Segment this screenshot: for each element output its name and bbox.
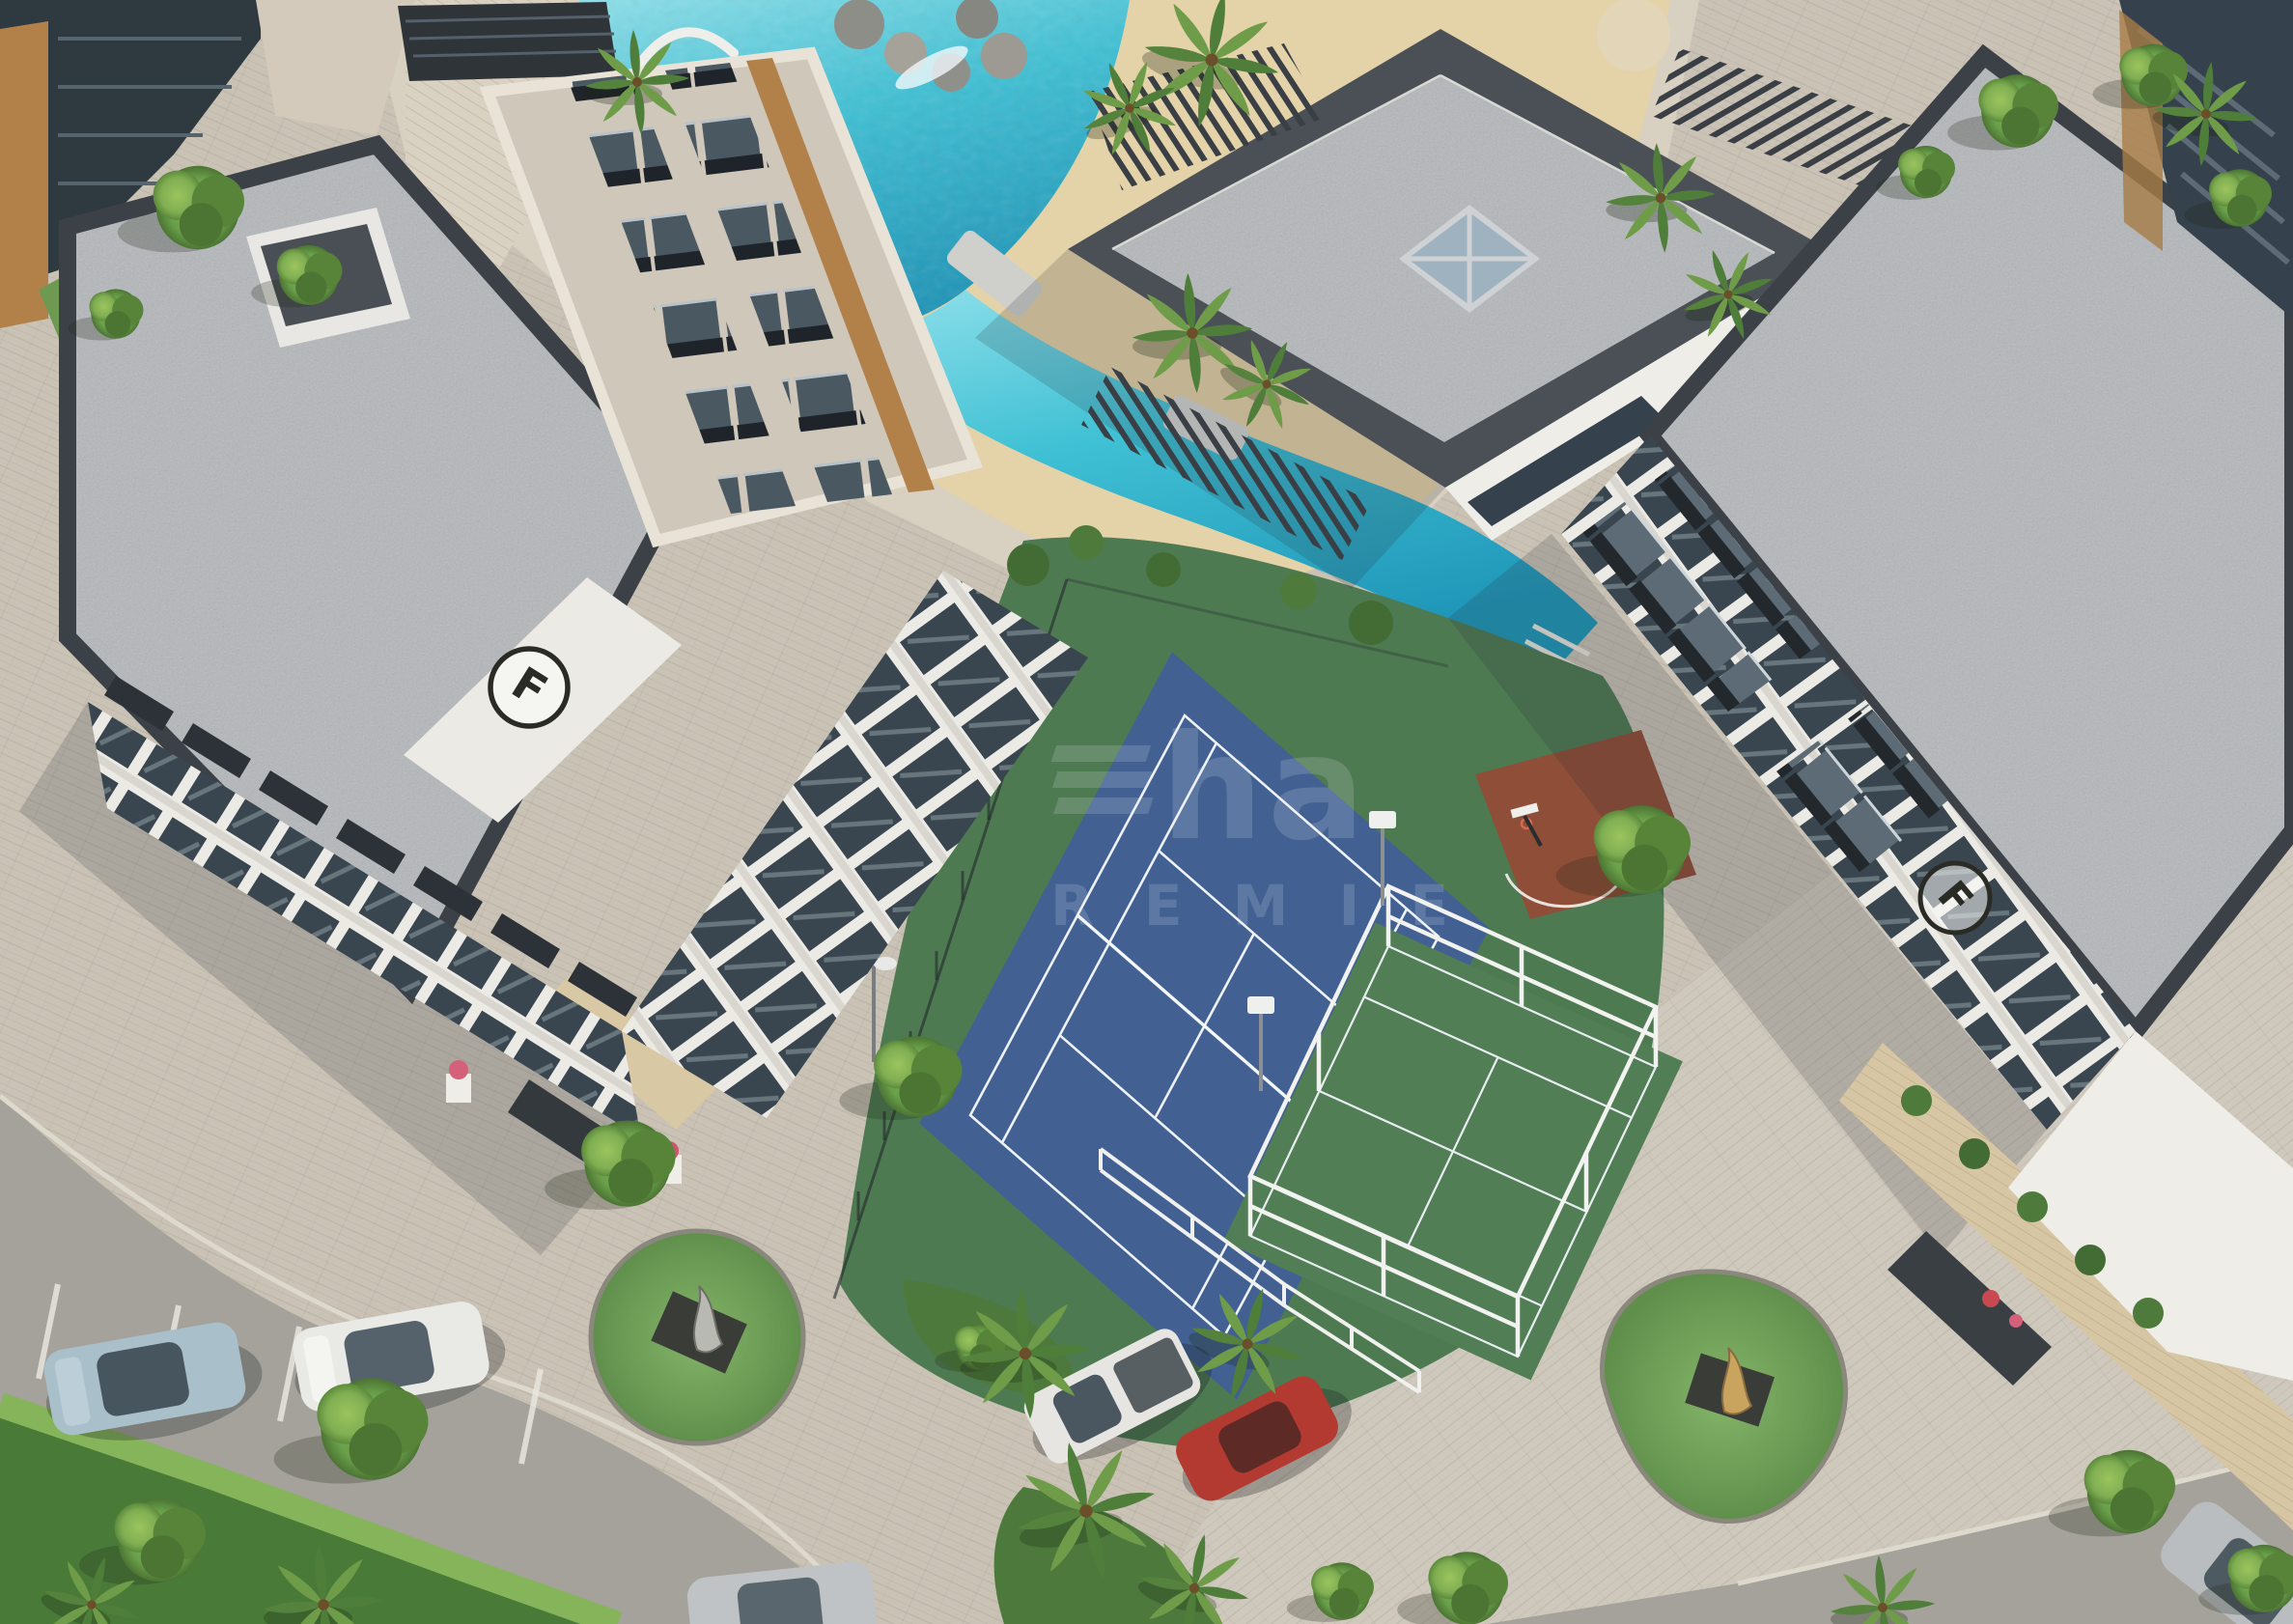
parasol <box>1597 0 1670 71</box>
flowers <box>2009 1314 2023 1328</box>
roundabout-island <box>591 1231 803 1443</box>
watermark-line2: R E M I E <box>1050 873 1464 938</box>
flowers <box>1982 1290 1999 1307</box>
aerial-render: F F <box>0 0 2293 1624</box>
watermark-line1: ha <box>1160 705 1369 873</box>
wood-slat-panel <box>0 21 48 328</box>
right-monogram-badge: F <box>1920 863 1990 933</box>
roof-solar-panels <box>398 2 618 81</box>
flowers <box>449 1060 468 1079</box>
